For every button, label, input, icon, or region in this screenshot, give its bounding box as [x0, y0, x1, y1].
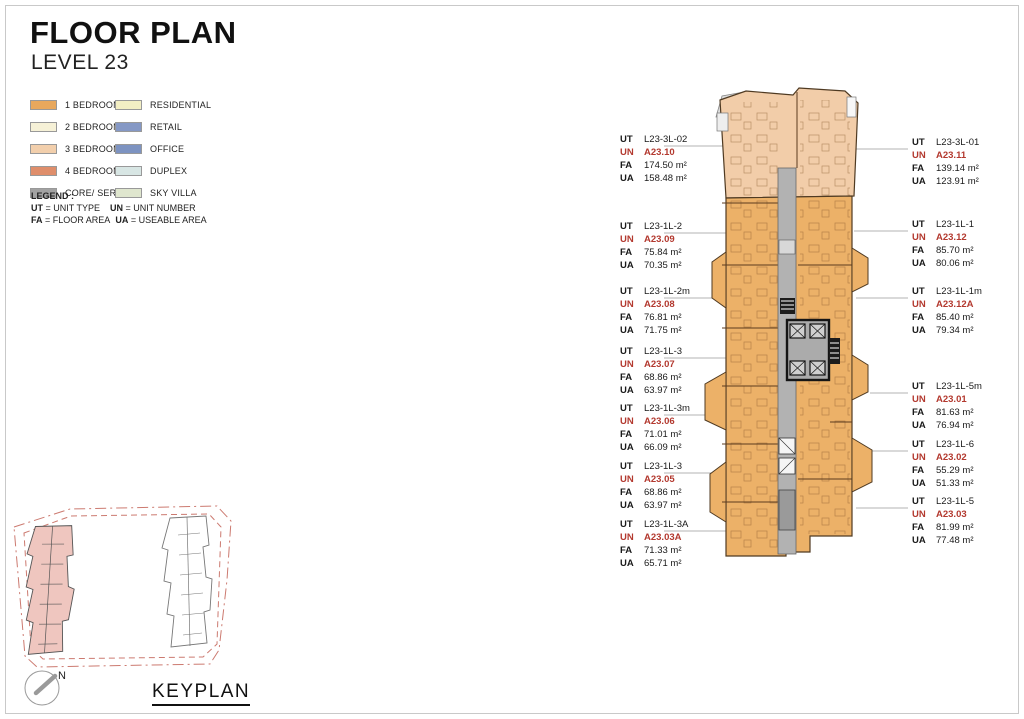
ua-value: 71.75 m² [644, 325, 682, 336]
un-value: A23.09 [644, 234, 675, 245]
furniture-texture-left [727, 102, 779, 550]
ua-value: 80.06 m² [936, 258, 974, 269]
ua-prefix: UA [620, 324, 644, 337]
unit-type-row: UTL23-1L-1m [912, 285, 1022, 298]
unit-type-row: UTL23-1L-5 [912, 495, 1022, 508]
ut-value: L23-1L-3 [644, 346, 682, 357]
un-value: A23.08 [644, 299, 675, 310]
ut-value: L23-1L-3 [644, 461, 682, 472]
ut-value: L23-1L-1m [936, 286, 982, 297]
unit-number-row: UNA23.01 [912, 393, 1022, 406]
unit-number-row: UNA23.12 [912, 231, 1022, 244]
un-prefix: UN [912, 508, 936, 521]
bay-right-3 [852, 438, 872, 492]
ut-prefix: UT [620, 518, 644, 531]
ut-value: L23-1L-2m [644, 286, 690, 297]
unit-type-row: UTL23-1L-3m [620, 402, 730, 415]
fa-prefix: FA [620, 159, 644, 172]
un-prefix: UN [912, 298, 936, 311]
keyplan-tower-outline [162, 516, 212, 647]
ua-value: 70.35 m² [644, 260, 682, 271]
bay-right-1 [852, 248, 868, 292]
floor-area-row: FA85.70 m² [912, 244, 1022, 257]
floor-area-row: FA85.40 m² [912, 311, 1022, 324]
ua-value: 79.34 m² [936, 325, 974, 336]
ua-prefix: UA [912, 257, 936, 270]
un-value: A23.01 [936, 394, 967, 405]
useable-area-row: UA80.06 m² [912, 257, 1022, 270]
ua-prefix: UA [620, 441, 644, 454]
fa-value: 81.63 m² [936, 407, 974, 418]
useable-area-row: UA70.35 m² [620, 259, 730, 272]
un-prefix: UN [912, 149, 936, 162]
ua-prefix: UA [912, 477, 936, 490]
fa-value: 75.84 m² [644, 247, 682, 258]
un-prefix: UN [620, 415, 644, 428]
un-value: A23.12A [936, 299, 974, 310]
un-prefix: UN [620, 298, 644, 311]
unit-type-row: UTL23-1L-3A [620, 518, 730, 531]
unit-number-row: UNA23.08 [620, 298, 730, 311]
floor-plan-sheet: FLOOR PLAN LEVEL 23 1 BEDROOM2 BEDROOM3 … [0, 0, 1024, 719]
un-value: A23.03 [936, 509, 967, 520]
ut-value: L23-1L-5m [936, 381, 982, 392]
fa-prefix: FA [620, 371, 644, 384]
ut-value: L23-1L-2 [644, 221, 682, 232]
ut-prefix: UT [620, 133, 644, 146]
ua-value: 65.71 m² [644, 558, 682, 569]
floor-area-row: FA68.86 m² [620, 371, 730, 384]
fa-prefix: FA [912, 311, 936, 324]
unit-label: UTL23-1L-3mUNA23.06FA71.01 m²UA66.09 m² [620, 402, 730, 454]
unit-number-row: UNA23.11 [912, 149, 1022, 162]
fa-value: 85.40 m² [936, 312, 974, 323]
un-prefix: UN [912, 451, 936, 464]
fa-value: 85.70 m² [936, 245, 974, 256]
floor-area-row: FA174.50 m² [620, 159, 730, 172]
ua-prefix: UA [912, 534, 936, 547]
keyplan-title: KEYPLAN [152, 681, 250, 706]
unit-number-row: UNA23.05 [620, 473, 730, 486]
un-prefix: UN [912, 231, 936, 244]
ut-prefix: UT [912, 495, 936, 508]
furniture-texture-right [800, 100, 850, 534]
floor-area-row: FA71.33 m² [620, 544, 730, 557]
fa-prefix: FA [620, 428, 644, 441]
ut-value: L23-1L-1 [936, 219, 974, 230]
ua-value: 63.97 m² [644, 385, 682, 396]
ut-prefix: UT [620, 345, 644, 358]
unit-label: UTL23-1L-3AUNA23.03AFA71.33 m²UA65.71 m² [620, 518, 730, 570]
ut-prefix: UT [912, 218, 936, 231]
unit-type-row: UTL23-1L-3 [620, 460, 730, 473]
fa-value: 71.01 m² [644, 429, 682, 440]
ut-prefix: UT [620, 402, 644, 415]
un-value: A23.12 [936, 232, 967, 243]
ua-prefix: UA [620, 557, 644, 570]
unit-number-row: UNA23.07 [620, 358, 730, 371]
ut-prefix: UT [912, 136, 936, 149]
unit-label: UTL23-1L-5UNA23.03FA81.99 m²UA77.48 m² [912, 495, 1022, 547]
fa-value: 139.14 m² [936, 163, 979, 174]
ua-value: 51.33 m² [936, 478, 974, 489]
ua-value: 66.09 m² [644, 442, 682, 453]
fa-value: 76.81 m² [644, 312, 682, 323]
useable-area-row: UA63.97 m² [620, 499, 730, 512]
unit-number-row: UNA23.03 [912, 508, 1022, 521]
fa-prefix: FA [912, 464, 936, 477]
ua-prefix: UA [912, 324, 936, 337]
floor-area-row: FA81.63 m² [912, 406, 1022, 419]
un-value: A23.05 [644, 474, 675, 485]
useable-area-row: UA158.48 m² [620, 172, 730, 185]
un-value: A23.11 [936, 150, 966, 161]
fa-value: 68.86 m² [644, 372, 682, 383]
fa-value: 71.33 m² [644, 545, 682, 556]
useable-area-row: UA66.09 m² [620, 441, 730, 454]
unit-type-row: UTL23-1L-1 [912, 218, 1022, 231]
stair-core [829, 338, 840, 364]
fa-prefix: FA [620, 544, 644, 557]
bay-right-2 [852, 355, 868, 400]
unit-type-row: UTL23-1L-2m [620, 285, 730, 298]
unit-type-row: UTL23-3L-02 [620, 133, 730, 146]
unit-type-row: UTL23-1L-6 [912, 438, 1022, 451]
ut-value: L23-1L-5 [936, 496, 974, 507]
useable-area-row: UA79.34 m² [912, 324, 1022, 337]
fa-prefix: FA [620, 486, 644, 499]
un-value: A23.07 [644, 359, 675, 370]
unit-type-row: UTL23-1L-2 [620, 220, 730, 233]
north-label: N [58, 670, 66, 682]
tower-plan [705, 88, 872, 556]
floor-area-row: FA139.14 m² [912, 162, 1022, 175]
floor-plan-drawing [0, 0, 1024, 719]
floor-area-row: FA55.29 m² [912, 464, 1022, 477]
unit-number-row: UNA23.12A [912, 298, 1022, 311]
ua-prefix: UA [620, 259, 644, 272]
ua-prefix: UA [620, 384, 644, 397]
ua-value: 77.48 m² [936, 535, 974, 546]
ut-value: L23-1L-6 [936, 439, 974, 450]
useable-area-row: UA63.97 m² [620, 384, 730, 397]
fa-value: 81.99 m² [936, 522, 974, 533]
fa-prefix: FA [620, 311, 644, 324]
ut-prefix: UT [620, 220, 644, 233]
useable-area-row: UA65.71 m² [620, 557, 730, 570]
keyplan [14, 506, 231, 705]
ut-prefix: UT [912, 380, 936, 393]
useable-area-row: UA77.48 m² [912, 534, 1022, 547]
fa-prefix: FA [912, 521, 936, 534]
un-prefix: UN [620, 473, 644, 486]
north-arrow-icon [25, 671, 59, 705]
unit-label: UTL23-1L-2mUNA23.08FA76.81 m²UA71.75 m² [620, 285, 730, 337]
unit-label: UTL23-1L-3UNA23.05FA68.86 m²UA63.97 m² [620, 460, 730, 512]
un-value: A23.06 [644, 416, 675, 427]
unit-number-row: UNA23.03A [620, 531, 730, 544]
useable-area-row: UA123.91 m² [912, 175, 1022, 188]
fa-prefix: FA [620, 246, 644, 259]
un-prefix: UN [912, 393, 936, 406]
ua-prefix: UA [620, 172, 644, 185]
unit-label: UTL23-3L-01UNA23.11FA139.14 m²UA123.91 m… [912, 136, 1022, 188]
ut-prefix: UT [912, 438, 936, 451]
ut-prefix: UT [620, 460, 644, 473]
unit-label: UTL23-1L-3UNA23.07FA68.86 m²UA63.97 m² [620, 345, 730, 397]
un-prefix: UN [620, 531, 644, 544]
ua-value: 63.97 m² [644, 500, 682, 511]
unit-label: UTL23-1L-5mUNA23.01FA81.63 m²UA76.94 m² [912, 380, 1022, 432]
balcony-box-right [847, 97, 856, 117]
unit-label: UTL23-3L-02UNA23.10FA174.50 m²UA158.48 m… [620, 133, 730, 185]
un-prefix: UN [620, 233, 644, 246]
unit-number-row: UNA23.02 [912, 451, 1022, 464]
fa-value: 174.50 m² [644, 160, 687, 171]
floor-area-row: FA76.81 m² [620, 311, 730, 324]
ua-value: 123.91 m² [936, 176, 979, 187]
ut-prefix: UT [620, 285, 644, 298]
floor-area-row: FA81.99 m² [912, 521, 1022, 534]
un-prefix: UN [620, 146, 644, 159]
balcony-box-left [717, 113, 728, 131]
ua-prefix: UA [620, 499, 644, 512]
floor-area-row: FA71.01 m² [620, 428, 730, 441]
ua-prefix: UA [912, 175, 936, 188]
keyplan-tower-highlighted [18, 522, 79, 658]
ut-value: L23-3L-01 [936, 137, 979, 148]
un-value: A23.10 [644, 147, 675, 158]
ut-value: L23-1L-3A [644, 519, 688, 530]
unit-label: UTL23-1L-1UNA23.12FA85.70 m²UA80.06 m² [912, 218, 1022, 270]
useable-area-row: UA51.33 m² [912, 477, 1022, 490]
un-value: A23.03A [644, 532, 682, 543]
ua-value: 158.48 m² [644, 173, 687, 184]
useable-area-row: UA71.75 m² [620, 324, 730, 337]
floor-area-row: FA68.86 m² [620, 486, 730, 499]
unit-label: UTL23-1L-1mUNA23.12AFA85.40 m²UA79.34 m² [912, 285, 1022, 337]
ua-value: 76.94 m² [936, 420, 974, 431]
unit-type-row: UTL23-1L-5m [912, 380, 1022, 393]
floor-area-row: FA75.84 m² [620, 246, 730, 259]
stair-upper [780, 298, 795, 314]
unit-number-row: UNA23.06 [620, 415, 730, 428]
unit-type-row: UTL23-3L-01 [912, 136, 1022, 149]
ut-value: L23-1L-3m [644, 403, 690, 414]
un-prefix: UN [620, 358, 644, 371]
un-value: A23.02 [936, 452, 967, 463]
fa-prefix: FA [912, 406, 936, 419]
unit-number-row: UNA23.09 [620, 233, 730, 246]
fa-value: 55.29 m² [936, 465, 974, 476]
fa-value: 68.86 m² [644, 487, 682, 498]
unit-label: UTL23-1L-6UNA23.02FA55.29 m²UA51.33 m² [912, 438, 1022, 490]
fa-prefix: FA [912, 244, 936, 257]
unit-number-row: UNA23.10 [620, 146, 730, 159]
fa-prefix: FA [912, 162, 936, 175]
useable-area-row: UA76.94 m² [912, 419, 1022, 432]
ut-prefix: UT [912, 285, 936, 298]
unit-type-row: UTL23-1L-3 [620, 345, 730, 358]
unit-label: UTL23-1L-2UNA23.09FA75.84 m²UA70.35 m² [620, 220, 730, 272]
ut-value: L23-3L-02 [644, 134, 687, 145]
ua-prefix: UA [912, 419, 936, 432]
